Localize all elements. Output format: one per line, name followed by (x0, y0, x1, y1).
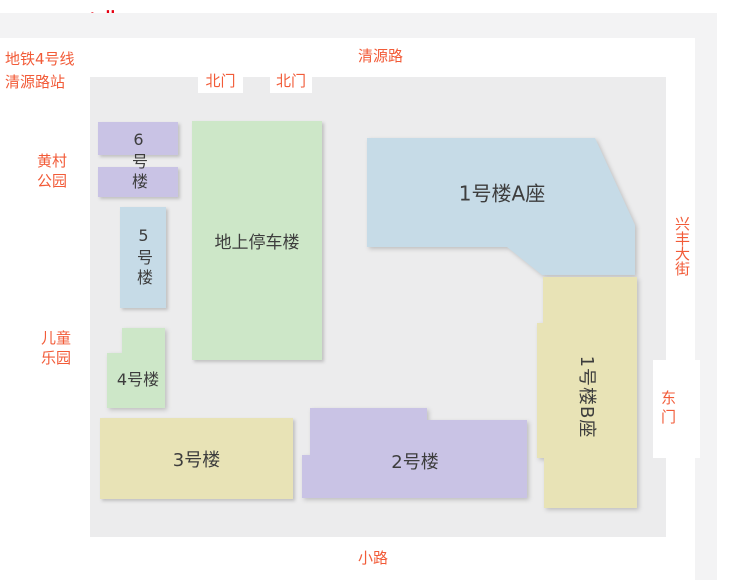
landmark-park: 黄村 公园 (36, 151, 68, 191)
subway-line-text: 地铁4号线 (5, 48, 75, 71)
building-4: 4号楼 (107, 328, 165, 408)
outer-road-band-right (695, 13, 717, 580)
road-label-north: 清源路 (358, 47, 403, 65)
building-3-label: 3号楼 (100, 418, 293, 499)
north-gate-1: 北门 (198, 68, 243, 93)
road-label-south: 小路 (358, 549, 388, 567)
east-gate: 东门 (653, 360, 700, 458)
building-1a-shape (367, 138, 635, 275)
building-5-label: 5号楼 (135, 226, 151, 289)
subway-station-text: 清源路站 (5, 71, 75, 94)
building-4-label: 4号楼 (117, 366, 159, 390)
building-1b-label: 1号楼B座 (575, 356, 601, 439)
building-1b: 1号楼B座 (537, 277, 637, 508)
north-gate-2-label: 北门 (276, 70, 306, 91)
landmark-playground: 儿童 乐园 (40, 328, 72, 368)
parking-building-label: 地上停车楼 (192, 121, 322, 360)
building-1a-label: 1号楼A座 (459, 178, 545, 207)
north-gate-1-label: 北门 (205, 70, 235, 91)
site-map-page: ↑北 清源路 兴丰大街 小路 地铁4号线 清源路站 黄村 公园 儿童 乐园 6号… (0, 0, 730, 580)
building-5: 5号楼 (120, 207, 166, 308)
parking-building: 地上停车楼 (192, 121, 322, 360)
map-area: 6号楼 5号楼 地上停车楼 1号楼A座 1号楼B座 4号楼 3号楼 2号楼 (90, 77, 666, 537)
building-1a: 1号楼A座 (367, 138, 635, 275)
building-6-label-wrap: 6号楼 (98, 125, 178, 197)
landmark-subway-station: 地铁4号线 清源路站 (5, 48, 75, 94)
east-gate-label: 东门 (658, 390, 679, 428)
building-2: 2号楼 (302, 408, 527, 498)
road-label-east: 兴丰大街 (673, 216, 691, 276)
playground-text-line2: 乐园 (40, 348, 72, 368)
outer-road-band-top (0, 13, 717, 38)
building-2-label: 2号楼 (391, 448, 438, 474)
playground-text-line1: 儿童 (40, 328, 72, 348)
park-text-line1: 黄村 (36, 151, 68, 171)
north-gate-2: 北门 (270, 68, 312, 93)
building-3: 3号楼 (100, 418, 293, 499)
building-6-label: 6号楼 (130, 130, 146, 193)
park-text-line2: 公园 (36, 171, 68, 191)
